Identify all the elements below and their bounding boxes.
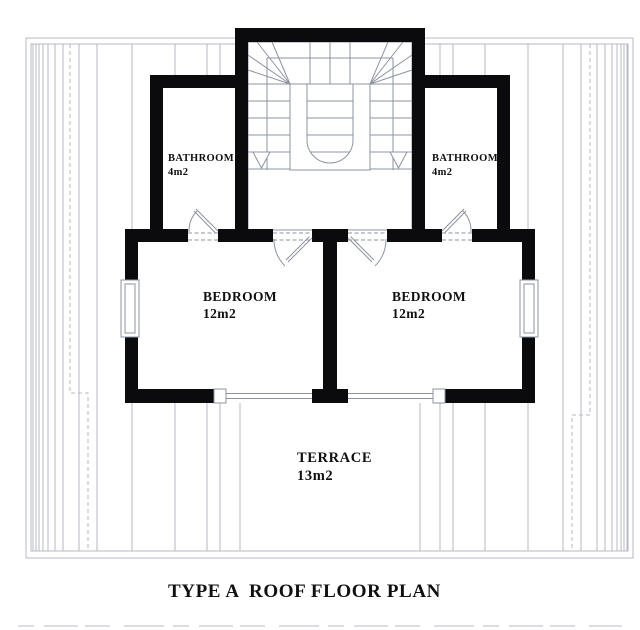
bathroom-right-top-wall — [412, 75, 510, 88]
bedroom-left-area: 12m2 — [203, 306, 236, 321]
bedroom-left-bottom-wall — [125, 389, 222, 403]
bedroom-right-area: 12m2 — [392, 306, 425, 321]
bathroom-right-name: BATHROOM — [432, 153, 498, 164]
stair-top-wall — [235, 28, 425, 42]
bedroom-left-window — [121, 280, 139, 337]
bathroom-left-side-wall — [150, 75, 163, 242]
bathroom-right-area: 4m2 — [432, 167, 452, 178]
bedroom-right-window — [520, 280, 538, 337]
terrace-area: 13m2 — [297, 468, 333, 484]
bathroom-left-top-wall — [150, 75, 248, 88]
plan-title-text: ROOF FLOOR PLAN — [249, 581, 441, 602]
stair-right-wall — [412, 28, 425, 230]
bedroom-left-name: BEDROOM — [203, 289, 277, 304]
terrace-name: TERRACE — [297, 450, 372, 466]
bathroom-right-side-wall — [497, 75, 510, 242]
bedroom-divider-wall — [323, 229, 337, 403]
bathroom-left-area: 4m2 — [168, 167, 188, 178]
plan-title-type: TYPE A — [168, 581, 240, 602]
plan-title: TYPE A ROOF FLOOR PLAN — [168, 581, 441, 602]
floor-plan: BATHROOM 4m2 BATHROOM 4m2 BEDROOM 12m2 B… — [0, 0, 640, 630]
bedroom-right-bottom-wall — [437, 389, 535, 403]
bathroom-left-name: BATHROOM — [168, 153, 234, 164]
stair-left-wall — [235, 28, 248, 230]
bedroom-right-name: BEDROOM — [392, 289, 466, 304]
floor-plan-drawing: BATHROOM 4m2 BATHROOM 4m2 BEDROOM 12m2 B… — [0, 0, 640, 630]
